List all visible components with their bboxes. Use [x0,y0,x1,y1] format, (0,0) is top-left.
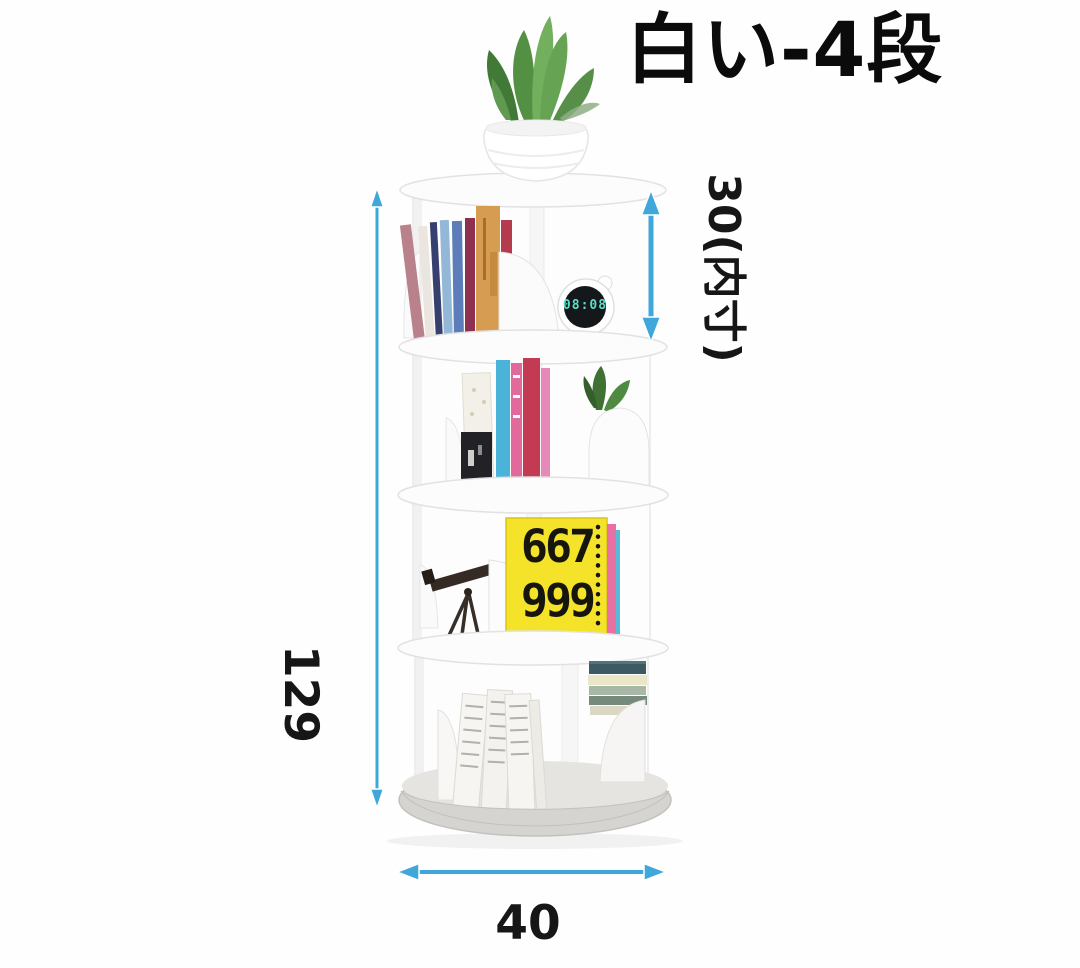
book-spine [523,358,540,485]
book-sliver-cyan [616,530,620,634]
product-title: 白い-4段 [626,6,1078,93]
stripe [513,395,520,398]
potted-plant [484,16,600,181]
white-books-tier4 [452,690,547,816]
book-sliver-pink [607,524,616,640]
box-label [468,450,474,466]
arrowhead-right [644,864,666,881]
dot [482,400,486,404]
book-spine [541,368,550,485]
yellow-book-number-top: 667 [513,520,601,574]
shelf-disc-2 [398,477,668,513]
dimension-inner-height-label: 30(内寸) [695,151,751,385]
arrowhead-up [371,188,384,207]
dimension-height-label: 129 [270,634,330,754]
stacked-book [588,675,647,685]
dot [472,388,476,392]
shelf-disc-3 [398,631,668,665]
pot-rim [486,120,586,136]
book-spine [465,218,475,340]
stacked-book [589,686,646,695]
dimension-width-label: 40 [486,896,570,952]
book-spine-text-mark [483,218,486,280]
stacked-book-edge [589,661,646,664]
yellow-book-numbers: 667 999 [513,520,601,628]
dot [470,412,474,416]
arrowhead-down [371,789,384,808]
yellow-book-number-bottom: 999 [513,574,601,628]
arrowhead-left [397,864,419,881]
black-box-item [461,432,492,485]
book-spine [511,363,522,485]
book-spine [452,221,464,340]
stripe [513,375,520,378]
box-label [478,445,482,455]
tier2-left-wall [414,347,422,489]
width-arrow [397,864,666,881]
telescope-knob [464,588,472,596]
product-image: 白い-4段 129 30(内寸) 40 08:08 667 999 [0,0,1080,968]
book-spine [496,360,510,485]
tier2-dome-divider [589,408,649,488]
clock-time-display: 08:08 [560,298,610,313]
black-box [461,432,492,485]
stripe [513,415,520,418]
height-arrow [371,188,384,808]
book-spine-text-mark [490,252,497,296]
bookshelf-illustration [0,0,1080,968]
